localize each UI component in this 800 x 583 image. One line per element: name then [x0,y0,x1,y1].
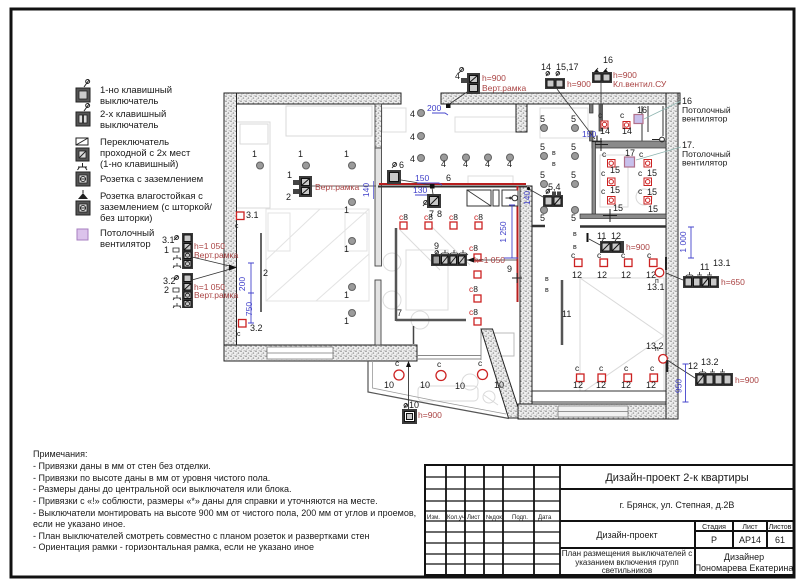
svg-text:1-но клавишный: 1-но клавишный [100,85,172,96]
svg-text:Пономарева Екатерина: Пономарева Екатерина [695,563,794,573]
svg-text:3.1: 3.1 [246,210,259,220]
svg-text:проходной с 2х мест: проходной с 2х мест [100,148,191,159]
svg-text:5: 5 [571,170,576,180]
svg-text:- Привязки по высоте даны в мм: - Привязки по высоте даны в мм от уровня… [33,473,270,483]
svg-text:1: 1 [287,170,292,180]
svg-text:Верт.рамка: Верт.рамка [194,290,238,300]
svg-text:№док: №док [486,514,502,521]
svg-text:14: 14 [541,62,551,72]
svg-text:выключатель: выключатель [100,120,158,131]
svg-text:в: в [552,150,556,157]
svg-text:12: 12 [597,270,607,280]
svg-text:Листов: Листов [769,524,792,531]
svg-text:4: 4 [485,159,490,169]
svg-text:12: 12 [621,270,631,280]
svg-text:Лист: Лист [742,524,758,531]
svg-text:1: 1 [164,245,169,255]
svg-text:АР14: АР14 [739,535,761,545]
svg-text:выключатель: выключатель [100,96,158,107]
svg-text:в: в [573,244,577,251]
svg-text:h=1 050: h=1 050 [474,255,505,265]
svg-text:1: 1 [252,149,257,159]
svg-text:200: 200 [237,277,247,291]
svg-text:Дизайн-проект 2-к квартиры: Дизайн-проект 2-к квартиры [605,472,748,484]
svg-text:17: 17 [625,148,635,158]
svg-text:с8: с8 [469,243,478,253]
svg-text:2-х клавишный: 2-х клавишный [100,109,166,120]
svg-text:в: в [573,231,577,238]
svg-text:61: 61 [775,535,785,545]
svg-text:4: 4 [463,159,468,169]
svg-text:14: 14 [600,126,610,136]
svg-text:Подп.: Подп. [512,515,528,521]
svg-text:130: 130 [413,185,427,195]
svg-text:15: 15 [648,204,658,214]
svg-text:в: в [545,287,549,294]
svg-text:h=900: h=900 [567,79,591,89]
svg-text:150: 150 [415,173,429,183]
svg-text:h=900: h=900 [482,73,506,83]
svg-text:с8: с8 [399,212,408,222]
svg-text:5: 5 [540,114,545,124]
svg-text:12: 12 [573,380,583,390]
svg-text:11: 11 [597,231,606,241]
svg-text:6: 6 [399,160,404,170]
svg-text:15: 15 [610,165,620,175]
svg-text:5: 5 [571,114,576,124]
svg-text:200: 200 [427,103,441,113]
svg-text:заземлением (с шторкой/: заземлением (с шторкой/ [100,202,212,213]
svg-text:5: 5 [571,213,576,223]
svg-text:без шторки): без шторки) [100,213,152,224]
svg-text:8: 8 [437,209,442,219]
svg-text:Кол.уч: Кол.уч [447,515,465,521]
svg-text:п: п [655,346,659,353]
svg-text:Изм.: Изм. [427,515,440,521]
svg-text:с8: с8 [449,212,458,222]
svg-text:9: 9 [434,241,439,251]
svg-text:1: 1 [344,205,349,215]
svg-text:вентилятор: вентилятор [682,158,728,168]
svg-text:вентилятор: вентилятор [682,114,728,124]
svg-text:4: 4 [410,132,415,142]
svg-text:h=900: h=900 [418,410,442,420]
svg-text:12: 12 [596,380,606,390]
svg-text:1: 1 [344,149,349,159]
svg-text:4: 4 [507,159,512,169]
svg-text:13.1: 13.1 [713,258,731,268]
svg-text:- Ориентация рамки - горизонта: - Ориентация рамки - горизонтальная рамк… [33,542,314,552]
svg-text:16: 16 [637,105,647,115]
svg-text:16: 16 [603,55,613,65]
svg-text:10: 10 [455,381,465,391]
svg-text:- Размеры даны до центральной: - Размеры даны до центральной оси выключ… [33,484,292,494]
svg-text:Верт.рамка: Верт.рамка [194,250,238,260]
svg-text:если не указано иное.: если не указано иное. [33,519,125,529]
svg-text:10: 10 [409,400,419,410]
svg-text:6: 6 [446,173,451,183]
svg-text:- План выключателей смотреть с: - План выключателей смотреть совместно с… [33,531,369,541]
svg-text:h=900: h=900 [626,242,650,252]
svg-text:140: 140 [522,191,532,205]
svg-text:7: 7 [429,209,434,219]
svg-text:вентилятор: вентилятор [100,239,151,250]
svg-text:(1-но клавишный): (1-но клавишный) [100,159,178,170]
svg-text:Р: Р [711,535,717,545]
svg-text:План размещения выключателей с: План размещения выключателей с [562,549,692,558]
svg-text:1: 1 [344,244,349,254]
svg-text:Кл.вентил.СУ: Кл.вентил.СУ [613,79,667,89]
svg-text:1: 1 [344,290,349,300]
svg-text:11: 11 [562,309,571,319]
svg-text:10: 10 [494,380,504,390]
svg-text:с8: с8 [469,284,478,294]
svg-text:в: в [545,276,549,283]
svg-text:12: 12 [572,270,582,280]
svg-text:Потолочный: Потолочный [100,228,154,239]
svg-text:h=650: h=650 [721,277,745,287]
svg-text:5: 5 [540,142,545,152]
svg-text:13.2: 13.2 [701,357,719,367]
svg-text:15: 15 [610,185,620,195]
svg-text:п: п [655,278,659,285]
svg-text:12: 12 [688,361,698,371]
svg-text:7: 7 [397,308,402,318]
svg-text:3.2: 3.2 [250,323,263,333]
svg-text:- Выключатели монтировать на в: - Выключатели монтировать на высоте 900 … [33,508,416,518]
svg-text:1 000: 1 000 [678,231,688,253]
svg-text:11: 11 [700,262,709,272]
svg-text:1: 1 [344,316,349,326]
svg-text:Дизайнер: Дизайнер [724,552,764,562]
svg-text:750: 750 [244,302,254,316]
svg-text:с: с [237,331,241,338]
svg-text:с8: с8 [469,307,478,317]
svg-text:12: 12 [646,380,656,390]
svg-text:Лист: Лист [467,515,480,521]
svg-text:5: 5 [540,170,545,180]
svg-text:1 250: 1 250 [498,221,508,243]
svg-text:5: 5 [540,213,545,223]
svg-text:- Привязки с «!» соблюсти, раз: - Привязки с «!» соблюсти, размеры «*» д… [33,496,378,506]
svg-text:3.1: 3.1 [162,235,175,245]
svg-text:1: 1 [298,149,303,159]
svg-text:4: 4 [410,109,415,119]
svg-text:Верт.рамка: Верт.рамка [482,83,526,93]
svg-text:Стадия: Стадия [702,524,726,531]
svg-text:в: в [552,161,556,168]
svg-text:Примечания:: Примечания: [33,449,87,459]
svg-text:Розетка с заземлением: Розетка с заземлением [100,174,203,185]
svg-text:2: 2 [286,192,291,202]
svg-text:Верт.рамка: Верт.рамка [315,182,359,192]
svg-text:с8: с8 [474,212,483,222]
svg-text:2: 2 [164,285,169,295]
svg-text:Дизайн-проект: Дизайн-проект [596,530,657,540]
svg-text:10: 10 [420,380,430,390]
svg-text:14: 14 [622,126,632,136]
svg-text:12: 12 [621,380,631,390]
svg-text:5: 5 [571,142,576,152]
svg-text:светильников: светильников [602,566,653,575]
svg-text:- Привязки даны в мм от стен б: - Привязки даны в мм от стен без отделки… [33,461,211,471]
svg-text:15,17: 15,17 [556,62,579,72]
svg-text:г. Брянск, ул. Степная, д.2В: г. Брянск, ул. Степная, д.2В [620,500,735,510]
svg-text:4: 4 [441,159,446,169]
svg-text:Дата: Дата [538,515,552,521]
svg-text:15: 15 [647,168,657,178]
svg-text:Переключатель: Переключатель [100,137,169,148]
svg-text:150: 150 [582,129,596,139]
svg-text:с: с [235,223,239,230]
svg-text:2: 2 [263,268,268,278]
svg-text:15: 15 [647,187,657,197]
svg-text:950: 950 [674,379,684,393]
svg-text:10: 10 [384,380,394,390]
svg-text:h=900: h=900 [735,375,759,385]
svg-text:15: 15 [613,203,623,213]
svg-text:Розетка влагостойкая с: Розетка влагостойкая с [100,191,203,202]
svg-text:4: 4 [410,154,415,164]
svg-text:140: 140 [361,183,371,197]
svg-text:9: 9 [507,264,512,274]
